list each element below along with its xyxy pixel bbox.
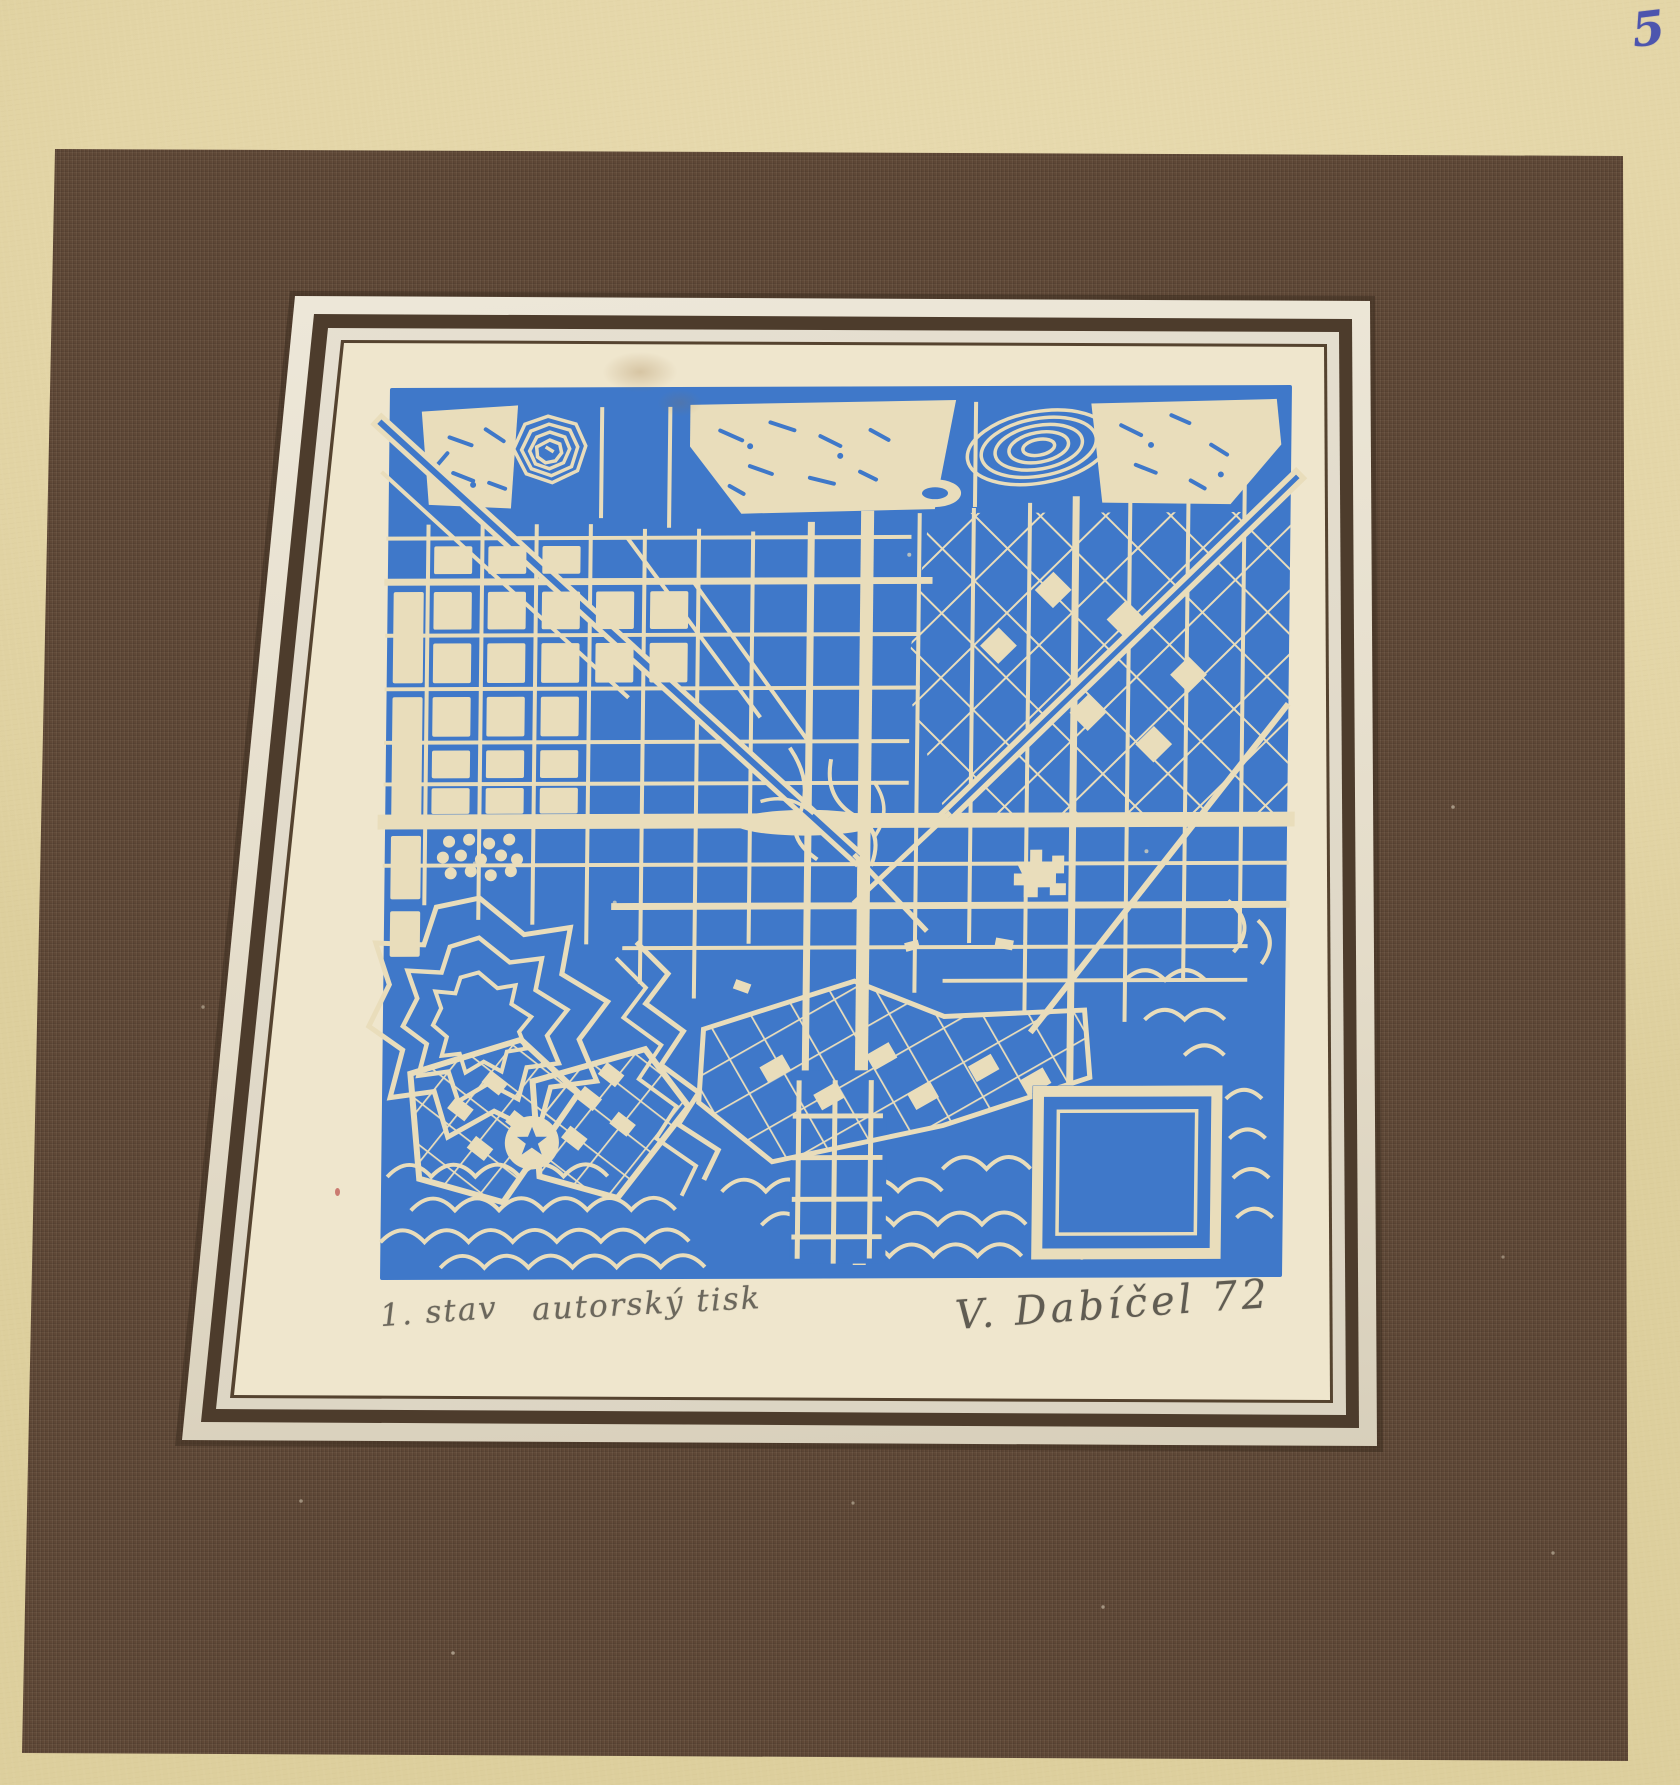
mat-dust-speckles [0,0,2,2]
corner-number-annotation: 5 [1629,0,1668,59]
photo-backdrop: 1. stav autorský tisk V. Dabíčel 72 5 [0,0,1680,1785]
red-paint-speck [335,1188,340,1196]
